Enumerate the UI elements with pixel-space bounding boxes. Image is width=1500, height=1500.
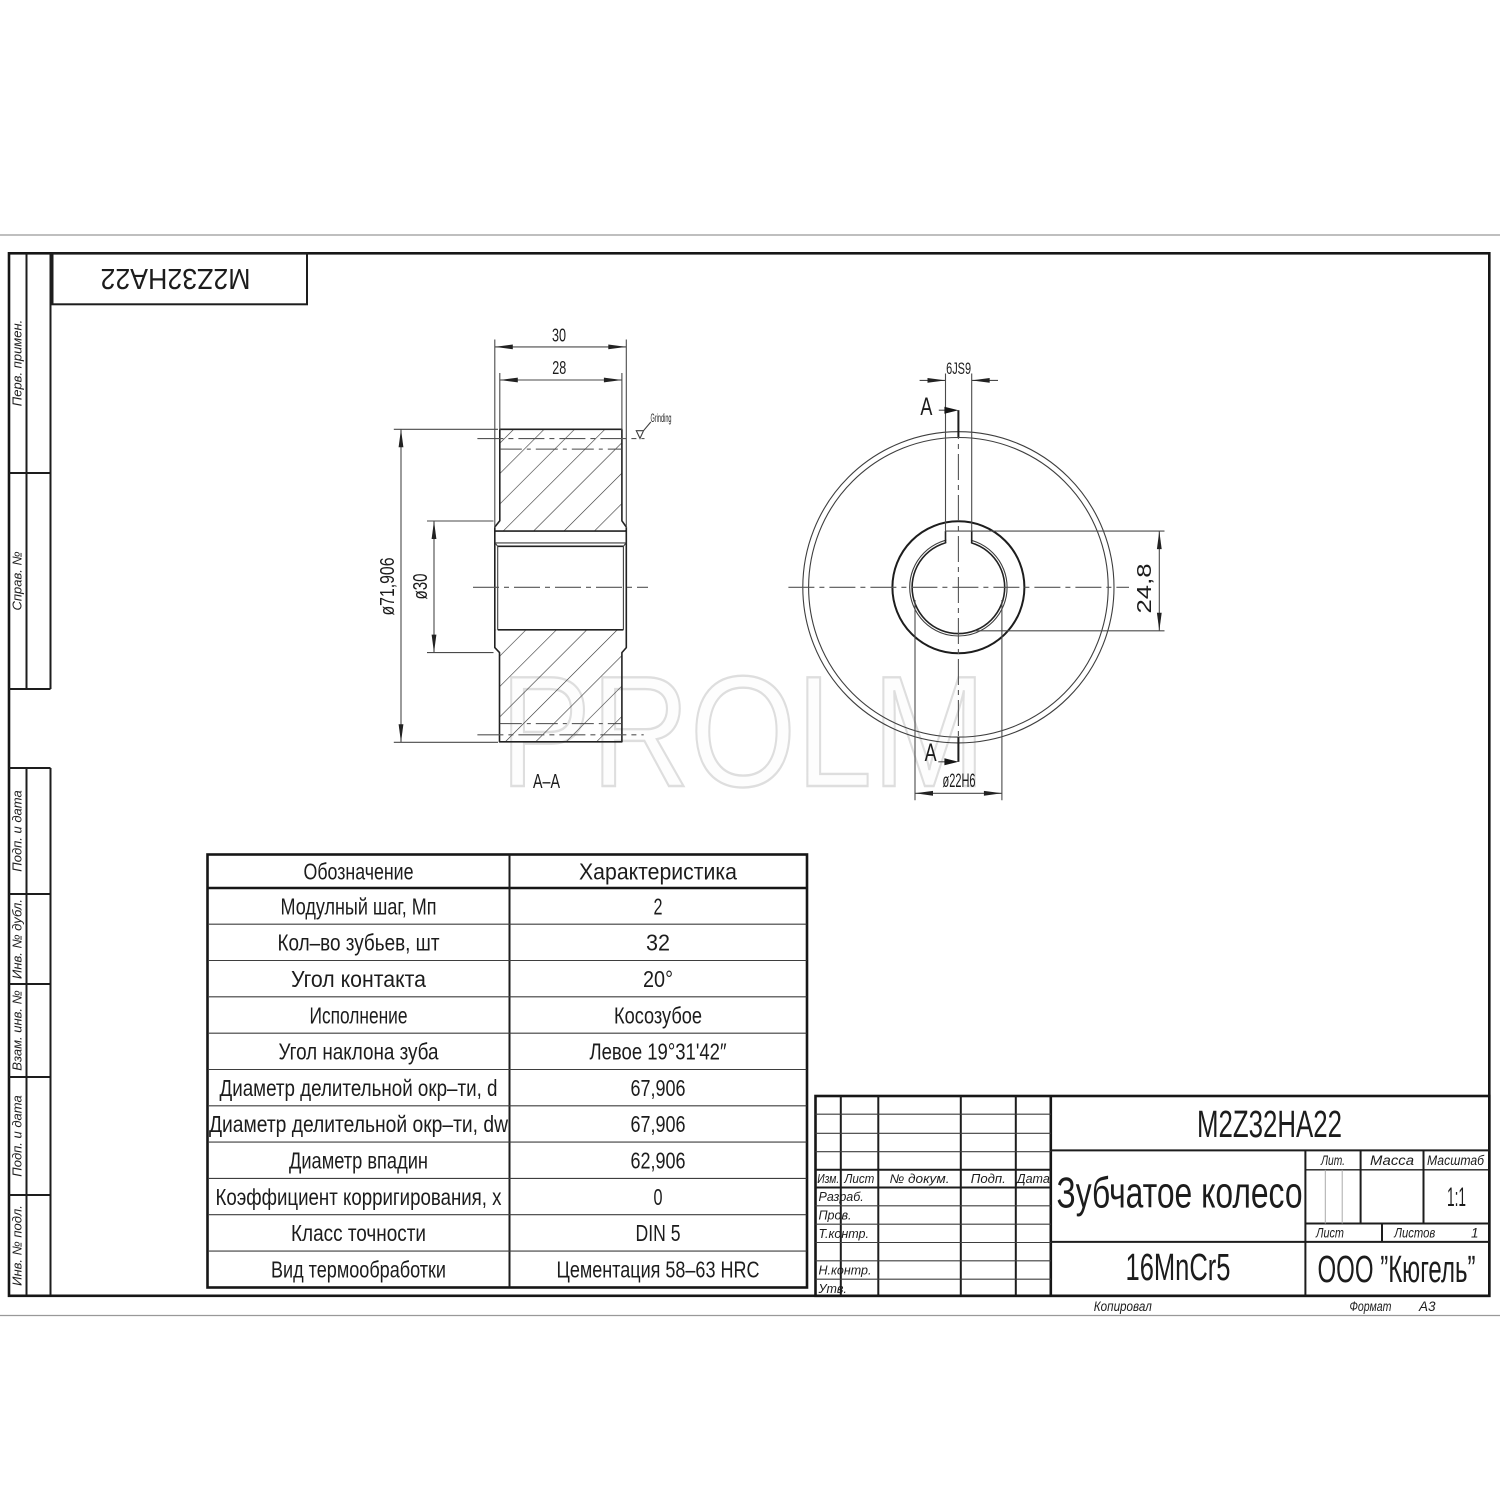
svg-text:Взам. инв. №: Взам. инв. № [10, 990, 25, 1070]
svg-text:32: 32 [646, 930, 670, 956]
svg-text:A: A [925, 739, 937, 767]
svg-text:M2Z32HA22: M2Z32HA22 [101, 262, 251, 294]
svg-text:Масса: Масса [1370, 1153, 1415, 1168]
svg-text:Пров.: Пров. [819, 1209, 852, 1223]
svg-text:Н.контр.: Н.контр. [819, 1264, 872, 1278]
svg-text:Обозначение: Обозначение [304, 858, 414, 884]
svg-text:Коэффициент корригирования, х: Коэффициент корригирования, х [216, 1184, 502, 1210]
svg-text:Диаметр делительной окр–ти, d: Диаметр делительной окр–ти, d [220, 1075, 498, 1101]
svg-text:67,906: 67,906 [631, 1075, 686, 1101]
svg-text:ООО ”Кюгель”: ООО ”Кюгель” [1318, 1249, 1476, 1291]
svg-text:67,906: 67,906 [631, 1111, 686, 1137]
svg-text:Вид термообработки: Вид термообработки [271, 1257, 446, 1283]
svg-text:Класс точности: Класс точности [291, 1220, 426, 1246]
svg-text:16MnCr5: 16MnCr5 [1126, 1247, 1231, 1289]
svg-text:20°: 20° [643, 966, 673, 992]
svg-text:Масштаб: Масштаб [1427, 1153, 1484, 1168]
svg-text:62,906: 62,906 [631, 1148, 686, 1174]
svg-text:Копировал: Копировал [1094, 1299, 1152, 1314]
svg-text:28: 28 [552, 357, 566, 378]
svg-text:Подп. и дата: Подп. и дата [10, 790, 25, 871]
svg-text:Изм.: Изм. [817, 1172, 839, 1186]
svg-text:Диаметр впадин: Диаметр впадин [289, 1148, 428, 1174]
svg-text:Характеристика: Характеристика [579, 858, 737, 884]
svg-text:1:1: 1:1 [1447, 1182, 1466, 1212]
svg-text:Лит.: Лит. [1320, 1153, 1345, 1168]
svg-text:1: 1 [1471, 1225, 1479, 1240]
svg-text:Цементация 58–63 HRC: Цементация 58–63 HRC [557, 1257, 760, 1283]
svg-text:Исполнение: Исполнение [310, 1002, 408, 1028]
svg-text:Дата: Дата [1015, 1172, 1050, 1186]
svg-text:Grinding: Grinding [651, 411, 672, 425]
svg-text:Утв.: Утв. [818, 1282, 847, 1296]
svg-text:M2Z32HA22: M2Z32HA22 [1197, 1104, 1342, 1146]
svg-text:Подп.: Подп. [971, 1172, 1006, 1186]
svg-text:Лист: Лист [1315, 1225, 1344, 1240]
svg-text:ø30: ø30 [410, 574, 432, 600]
svg-text:0: 0 [654, 1184, 663, 1210]
svg-text:Диаметр делительной окр–ти, dw: Диаметр делительной окр–ти, dw [209, 1111, 508, 1137]
svg-text:Т.контр.: Т.контр. [819, 1227, 869, 1241]
svg-text:Справ. №: Справ. № [10, 551, 25, 610]
svg-text:A: A [920, 393, 932, 421]
svg-text:А3: А3 [1418, 1299, 1436, 1314]
svg-text:ø22H6: ø22H6 [943, 771, 976, 792]
svg-text:Угол наклона зуба: Угол наклона зуба [279, 1039, 439, 1065]
svg-text:30: 30 [552, 324, 566, 345]
svg-text:Зубчатое колесо: Зубчатое колесо [1057, 1169, 1303, 1218]
svg-text:Подп. и дата: Подп. и дата [10, 1095, 25, 1176]
svg-text:№ докум.: № докум. [890, 1172, 950, 1186]
svg-text:Формат: Формат [1350, 1299, 1392, 1314]
svg-text:Левое 19°31'42″: Левое 19°31'42″ [590, 1039, 727, 1065]
svg-text:Модулный шаг, Мп: Модулный шаг, Мп [281, 893, 437, 919]
svg-text:Косозубое: Косозубое [614, 1002, 702, 1028]
svg-text:Лист: Лист [843, 1172, 874, 1186]
svg-text:2: 2 [654, 893, 663, 919]
svg-text:ø71,906: ø71,906 [377, 558, 399, 616]
svg-text:Кол–во зубьев, шт: Кол–во зубьев, шт [278, 930, 440, 956]
svg-text:24,8: 24,8 [1134, 564, 1156, 614]
svg-text:DIN 5: DIN 5 [636, 1220, 681, 1246]
svg-text:Разраб.: Разраб. [819, 1190, 864, 1204]
svg-text:Перв. примен.: Перв. примен. [10, 320, 25, 406]
svg-text:6JS9: 6JS9 [946, 359, 971, 378]
svg-text:Инв. № подл.: Инв. № подл. [10, 1205, 25, 1286]
svg-text:Угол контакта: Угол контакта [291, 966, 426, 992]
svg-text:A–A: A–A [533, 771, 560, 793]
svg-text:Листов: Листов [1393, 1225, 1435, 1240]
svg-text:Инв. № дубл.: Инв. № дубл. [10, 899, 25, 979]
